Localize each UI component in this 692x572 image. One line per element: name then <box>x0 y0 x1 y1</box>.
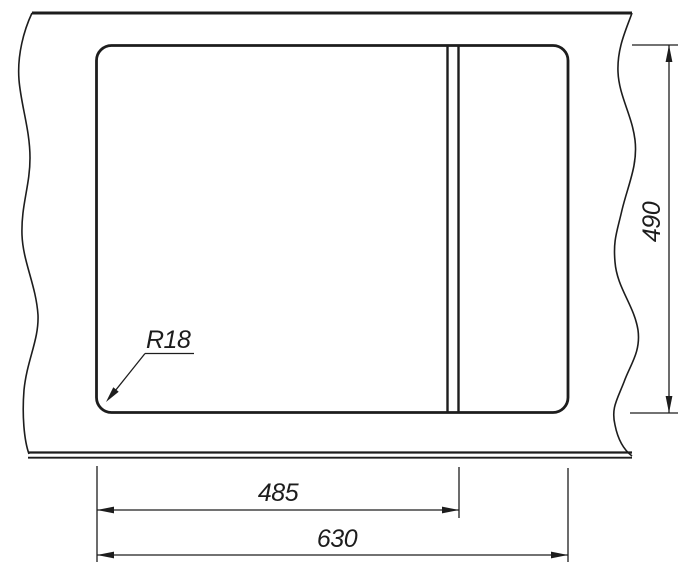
radius-label: R18 <box>146 326 191 354</box>
dimension-630-arrow-right <box>551 552 568 559</box>
technical-drawing-canvas: R18 485 630 490 <box>0 0 692 572</box>
dimension-485: 485 <box>97 479 459 513</box>
dimension-490-label: 490 <box>638 201 666 242</box>
dimension-490: 490 <box>630 45 678 413</box>
dimension-490-arrow-bottom <box>666 396 673 413</box>
dimension-485-label: 485 <box>258 479 299 507</box>
break-line-right <box>614 13 639 456</box>
break-line-left <box>19 13 38 454</box>
dimension-630: 630 <box>97 525 568 558</box>
cutout-outline <box>97 46 569 413</box>
sink-cutout-drawing: R18 485 630 490 <box>0 0 692 572</box>
dimension-630-arrow-left <box>97 552 114 559</box>
radius-callout: R18 <box>106 326 194 402</box>
dimension-485-arrow-left <box>97 507 114 514</box>
dimension-485-arrow-right <box>442 507 459 514</box>
dimension-630-label: 630 <box>317 525 358 553</box>
dimension-490-arrow-top <box>666 45 673 62</box>
